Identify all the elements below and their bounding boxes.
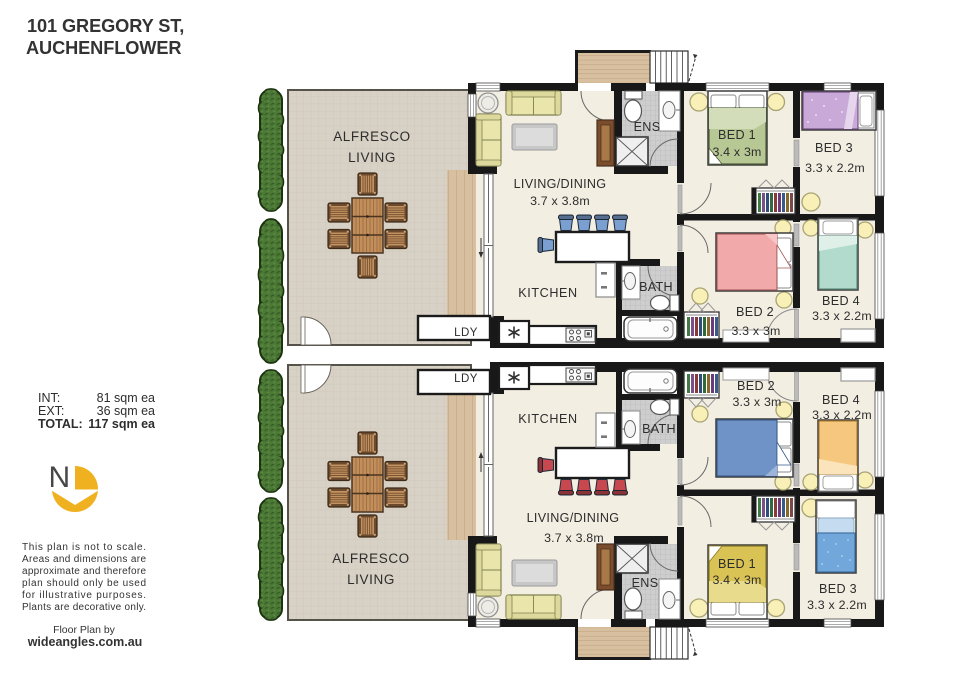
svg-text:ENS: ENS xyxy=(632,576,659,590)
svg-text:BED 2: BED 2 xyxy=(737,379,775,393)
svg-text:36 sqm ea: 36 sqm ea xyxy=(97,404,155,418)
svg-text:LIVING/DINING: LIVING/DINING xyxy=(527,511,620,525)
svg-text:BED 3: BED 3 xyxy=(815,141,853,155)
svg-text:wideangles.com.au: wideangles.com.au xyxy=(27,635,143,649)
svg-text:BED 3: BED 3 xyxy=(819,582,857,596)
svg-text:BED 4: BED 4 xyxy=(822,294,860,308)
svg-text:This plan is not to scale.: This plan is not to scale. xyxy=(22,542,146,553)
svg-text:101 GREGORY ST,: 101 GREGORY ST, xyxy=(27,16,184,36)
svg-text:BED 1: BED 1 xyxy=(718,557,756,571)
svg-text:plan should only be used: plan should only be used xyxy=(22,578,146,589)
svg-text:LIVING: LIVING xyxy=(347,572,395,587)
svg-text:LDY: LDY xyxy=(454,327,478,339)
svg-text:BATH: BATH xyxy=(639,280,673,294)
svg-text:3.3 x 3m: 3.3 x 3m xyxy=(732,395,781,409)
svg-text:approximate and therefore: approximate and therefore xyxy=(22,566,146,577)
svg-text:INT:: INT: xyxy=(38,391,60,405)
svg-text:BED 4: BED 4 xyxy=(822,393,860,407)
svg-text:LIVING: LIVING xyxy=(348,150,396,165)
svg-text:LDY: LDY xyxy=(454,373,478,385)
svg-text:KITCHEN: KITCHEN xyxy=(518,286,577,300)
svg-text:BATH: BATH xyxy=(642,422,676,436)
svg-text:3.3 x 2.2m: 3.3 x 2.2m xyxy=(812,309,872,323)
svg-text:Areas and dimensions are: Areas and dimensions are xyxy=(22,554,146,565)
svg-text:3.4 x 3m: 3.4 x 3m xyxy=(712,145,761,159)
svg-text:TOTAL:: TOTAL: xyxy=(38,417,83,431)
svg-text:EXT:: EXT: xyxy=(38,404,64,418)
svg-text:3.3 x 2.2m: 3.3 x 2.2m xyxy=(812,408,872,422)
svg-text:3.3 x 2.2m: 3.3 x 2.2m xyxy=(805,161,865,175)
svg-text:Plants are decorative only.: Plants are decorative only. xyxy=(22,602,146,613)
svg-text:N: N xyxy=(49,461,71,494)
svg-text:LIVING/DINING: LIVING/DINING xyxy=(514,177,607,191)
svg-text:3.4 x 3m: 3.4 x 3m xyxy=(712,573,761,587)
svg-text:AUCHENFLOWER: AUCHENFLOWER xyxy=(26,38,181,58)
svg-text:117 sqm ea: 117 sqm ea xyxy=(88,417,156,431)
svg-text:ENS: ENS xyxy=(634,120,661,134)
svg-text:3.7 x 3.8m: 3.7 x 3.8m xyxy=(544,531,604,545)
svg-text:81 sqm ea: 81 sqm ea xyxy=(97,391,155,405)
svg-text:ALFRESCO: ALFRESCO xyxy=(332,551,410,566)
svg-text:BED 2: BED 2 xyxy=(736,305,774,319)
svg-text:ALFRESCO: ALFRESCO xyxy=(333,129,411,144)
svg-text:for illustrative purposes.: for illustrative purposes. xyxy=(22,590,146,601)
svg-text:KITCHEN: KITCHEN xyxy=(518,412,577,426)
svg-text:3.7 x 3.8m: 3.7 x 3.8m xyxy=(530,194,590,208)
svg-text:3.3 x 3m: 3.3 x 3m xyxy=(731,324,780,338)
svg-text:BED 1: BED 1 xyxy=(718,128,756,142)
svg-text:3.3 x 2.2m: 3.3 x 2.2m xyxy=(807,598,867,612)
